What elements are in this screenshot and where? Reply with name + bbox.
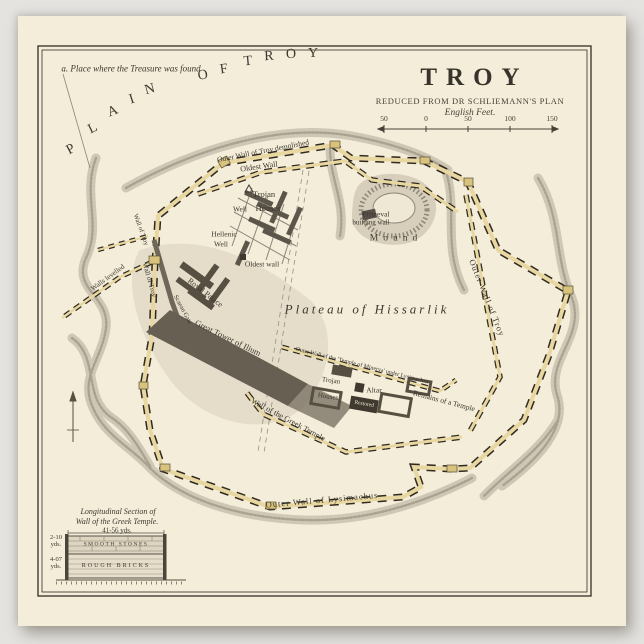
label-plain-letter-o1: O <box>197 68 209 84</box>
label-mound: Mound <box>370 234 422 244</box>
label-remains-temple: Remains of a Temple <box>412 389 475 413</box>
label-hellenic-well: Well <box>214 240 228 248</box>
map-labels: a. Place where the Treasure was foundPLA… <box>0 0 644 644</box>
label-trojan-1: Trojan <box>253 190 275 199</box>
label-section-title-2: Wall of the Greek Temple. <box>76 518 158 526</box>
label-section-title-1: Longitudinal Section of <box>80 508 155 516</box>
label-building-wall: building wall <box>352 220 389 227</box>
label-scaean-gate: Scaean Gate <box>172 294 193 326</box>
label-restored: Restored <box>354 401 374 410</box>
label-plain-letter-p: P <box>64 142 77 158</box>
label-wall-of-troy-mid: Wall of Troy <box>141 262 158 298</box>
label-plain-letter-i: I <box>128 93 137 108</box>
label-plain-letter-t: T <box>243 55 253 70</box>
label-plain-letter-y: Y <box>308 47 318 61</box>
label-plain-letter-o2: O <box>286 48 296 62</box>
label-well-1: Well <box>233 205 247 213</box>
label-houses-1: Houses <box>255 204 280 213</box>
label-treasure-note: a. Place where the Treasure was found <box>61 65 200 74</box>
label-primeval: Primeval <box>362 210 389 218</box>
label-plateau: Plateau of Hissarlik <box>285 303 450 316</box>
label-dim-bot-unit: yds. <box>51 564 62 571</box>
label-outer-wall-right: Outer Wall of Troy <box>468 258 507 338</box>
label-smooth-stones: SMOOTH STONES <box>84 542 149 548</box>
label-houses-2: Houses <box>317 392 338 402</box>
label-section-width: 41-56 yds. <box>102 528 132 535</box>
label-plain-letter-a: A <box>106 104 121 121</box>
label-plain-letter-l: L <box>86 121 100 137</box>
label-walls-levelled: Walls levelled <box>90 264 126 293</box>
label-royal-palace: Royal Palace <box>186 277 224 309</box>
label-wall-of-troy-left: Wall of Troy <box>131 213 148 246</box>
label-plain-letter-f: F <box>219 63 229 78</box>
poster-page: TROY REDUCED FROM DR SCHLIEMANN'S PLAN E… <box>0 0 644 644</box>
label-plain-letter-r: R <box>264 50 274 64</box>
label-greek-temple-wall: Wall of the Greek Temple <box>250 397 327 443</box>
label-plain-letter-n: N <box>143 82 156 98</box>
label-rough-bricks: ROUGH BRICKS <box>82 563 151 569</box>
label-great-tower: Great Tower of Ilium <box>194 318 263 357</box>
label-minerva-wall: Outer Wall of the 'Temple of Minerva' un… <box>295 347 429 386</box>
label-dim-top-unit: yds. <box>51 542 62 549</box>
label-altar: Altar <box>366 386 381 394</box>
label-oldest-wall-2: Oldest wall <box>245 260 279 268</box>
label-outer-wall-demolished: Outer Wall of Troy demolished <box>216 138 309 163</box>
label-trojan-2: Trojan <box>321 376 340 385</box>
label-outer-wall-lysimachus: Outer Wall of Lysimachus <box>265 491 378 509</box>
label-hellenic: Hellenic <box>211 230 236 238</box>
label-oldest-wall-top: Oldest Wall <box>240 160 278 173</box>
